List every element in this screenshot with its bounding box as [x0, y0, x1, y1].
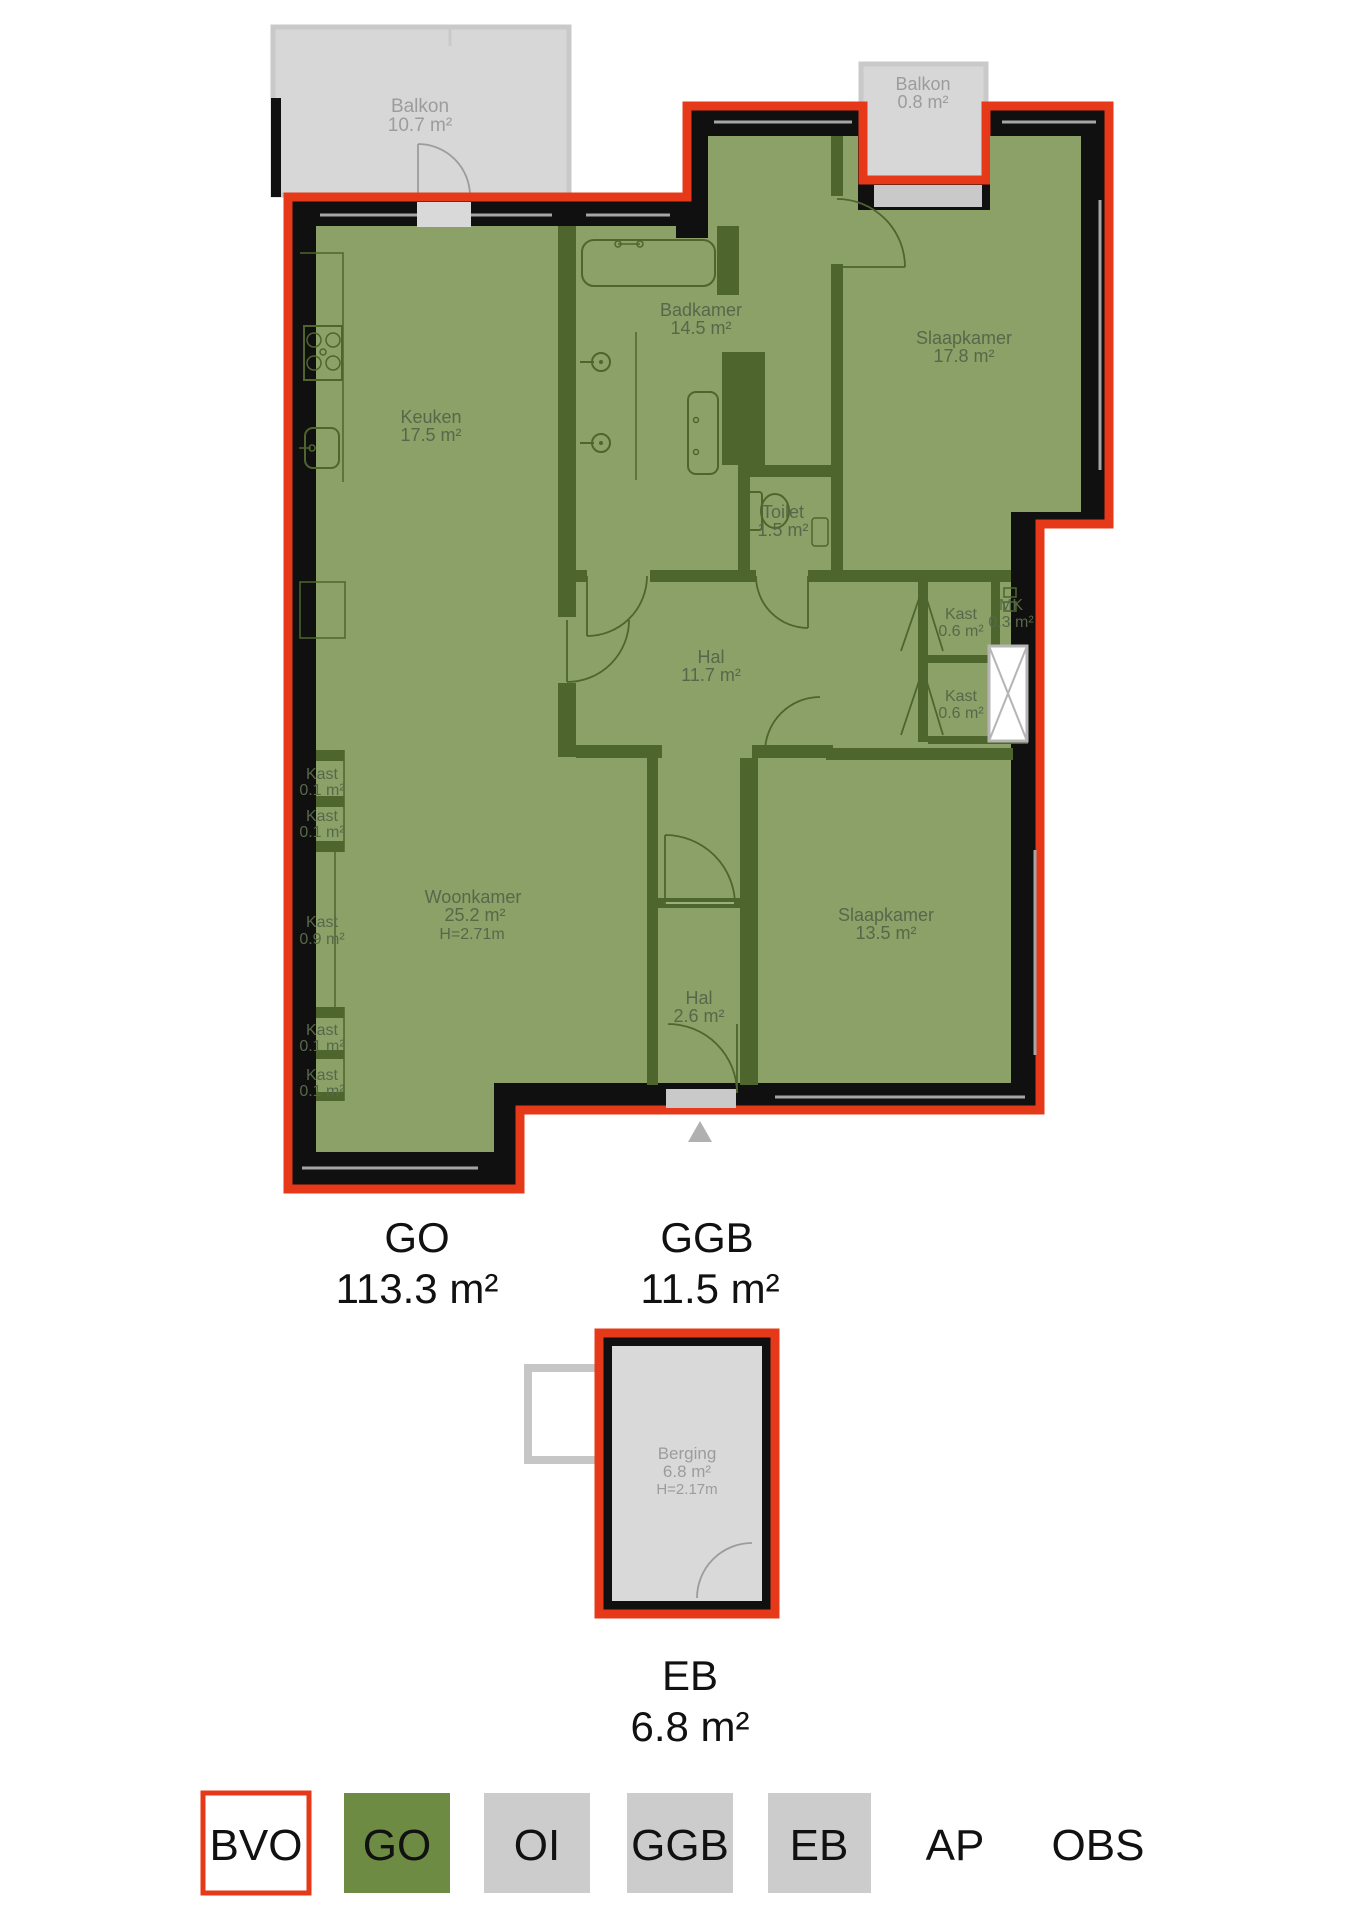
- room-toilet-name: Toilet: [762, 502, 804, 522]
- balcony-top-right-area: 0.8 m²: [897, 92, 948, 112]
- legend-label-obs: OBS: [1052, 1821, 1145, 1870]
- room-woonkamer-area: 25.2 m²: [444, 905, 505, 925]
- room-kast-l3-name: Kast: [306, 914, 339, 931]
- room-kast-l5-area: 0.1 m²: [299, 1083, 345, 1100]
- room-keuken-area: 17.5 m²: [400, 425, 461, 445]
- room-kast-l4-name: Kast: [306, 1022, 339, 1039]
- room-mk-area: 0.3 m²: [988, 614, 1034, 631]
- room-hal1-name: Hal: [697, 647, 724, 667]
- room-hal1-area: 11.7 m²: [681, 665, 741, 685]
- room-kast-r1-area: 0.6 m²: [938, 623, 984, 640]
- floorplan-canvas: Balkon 10.7 m² Balkon 0.8 m²: [0, 0, 1358, 1920]
- room-kast-l2-name: Kast: [306, 808, 339, 825]
- summary-eb-area: 6.8 m²: [630, 1703, 749, 1750]
- room-kast-l5-name: Kast: [306, 1067, 339, 1084]
- legend-label-eb: EB: [790, 1821, 849, 1870]
- room-slaapkamer1-area: 17.8 m²: [933, 346, 994, 366]
- room-mk-name: MK: [999, 597, 1023, 614]
- legend-label-go: GO: [363, 1821, 431, 1870]
- balcony2-door-opening: [874, 185, 982, 207]
- summary-go-area: 113.3 m²: [336, 1265, 499, 1312]
- berging-area: 6.8 m²: [663, 1462, 712, 1481]
- room-slaapkamer2-area: 13.5 m²: [855, 923, 916, 943]
- summary-eb-label: EB: [662, 1652, 718, 1699]
- room-kast-l3-area: 0.9 m²: [299, 931, 345, 948]
- legend-label-bvo: BVO: [210, 1821, 303, 1870]
- room-badkamer-area: 14.5 m²: [670, 318, 731, 338]
- room-hal2-area: 2.6 m²: [673, 1006, 724, 1026]
- entrance-marker: [688, 1121, 712, 1142]
- room-keuken-name: Keuken: [400, 407, 461, 427]
- balcony-top-left-area: 10.7 m²: [388, 115, 452, 136]
- front-door-opening: [666, 1089, 736, 1108]
- room-kast-l1-area: 0.1 m²: [299, 782, 345, 799]
- balcony-top-left-name: Balkon: [391, 96, 449, 117]
- room-kast-r1-name: Kast: [945, 606, 978, 623]
- balcony-top-right-name: Balkon: [895, 74, 950, 94]
- legend-label-oi: OI: [514, 1821, 560, 1870]
- area-summaries: GO 113.3 m² GGB 11.5 m²: [336, 1214, 780, 1312]
- room-kast-l1-name: Kast: [306, 766, 339, 783]
- legend-label-ap: AP: [926, 1821, 985, 1870]
- room-badkamer-name: Badkamer: [660, 300, 742, 320]
- berging-height: H=2.17m: [656, 1481, 717, 1498]
- room-slaapkamer2-name: Slaapkamer: [838, 905, 934, 925]
- summary-ggb-label: GGB: [660, 1214, 753, 1261]
- room-hal2-name: Hal: [685, 988, 712, 1008]
- berging-annex: [528, 1368, 602, 1460]
- legend-label-ggb: GGB: [631, 1821, 729, 1870]
- floorplan-page: Balkon 10.7 m² Balkon 0.8 m²: [0, 0, 1358, 1920]
- berging: Berging 6.8 m² H=2.17m EB 6.8 m²: [528, 1333, 775, 1750]
- room-slaapkamer1-name: Slaapkamer: [916, 328, 1012, 348]
- shaft-box: [989, 646, 1027, 741]
- legend: BVO GO OI GGB EB AP OBS: [203, 1793, 1144, 1893]
- balcony-door-opening: [417, 202, 471, 227]
- room-kast-l2-area: 0.1 m²: [299, 824, 345, 841]
- room-kast-r2-name: Kast: [945, 688, 978, 705]
- room-woonkamer-name: Woonkamer: [425, 887, 522, 907]
- room-kast-l4-area: 0.1 m²: [299, 1038, 345, 1055]
- summary-go-label: GO: [384, 1214, 449, 1261]
- berging-name: Berging: [658, 1444, 717, 1463]
- balcony-top-left: Balkon 10.7 m²: [271, 27, 569, 197]
- room-woonkamer-height: H=2.71m: [439, 926, 504, 943]
- balcony-side-wall: [271, 98, 281, 197]
- room-toilet-area: 1.5 m²: [757, 520, 808, 540]
- balcony-top-right: Balkon 0.8 m²: [861, 64, 986, 178]
- summary-ggb-area: 11.5 m²: [640, 1265, 779, 1312]
- room-kast-r2-area: 0.6 m²: [938, 705, 984, 722]
